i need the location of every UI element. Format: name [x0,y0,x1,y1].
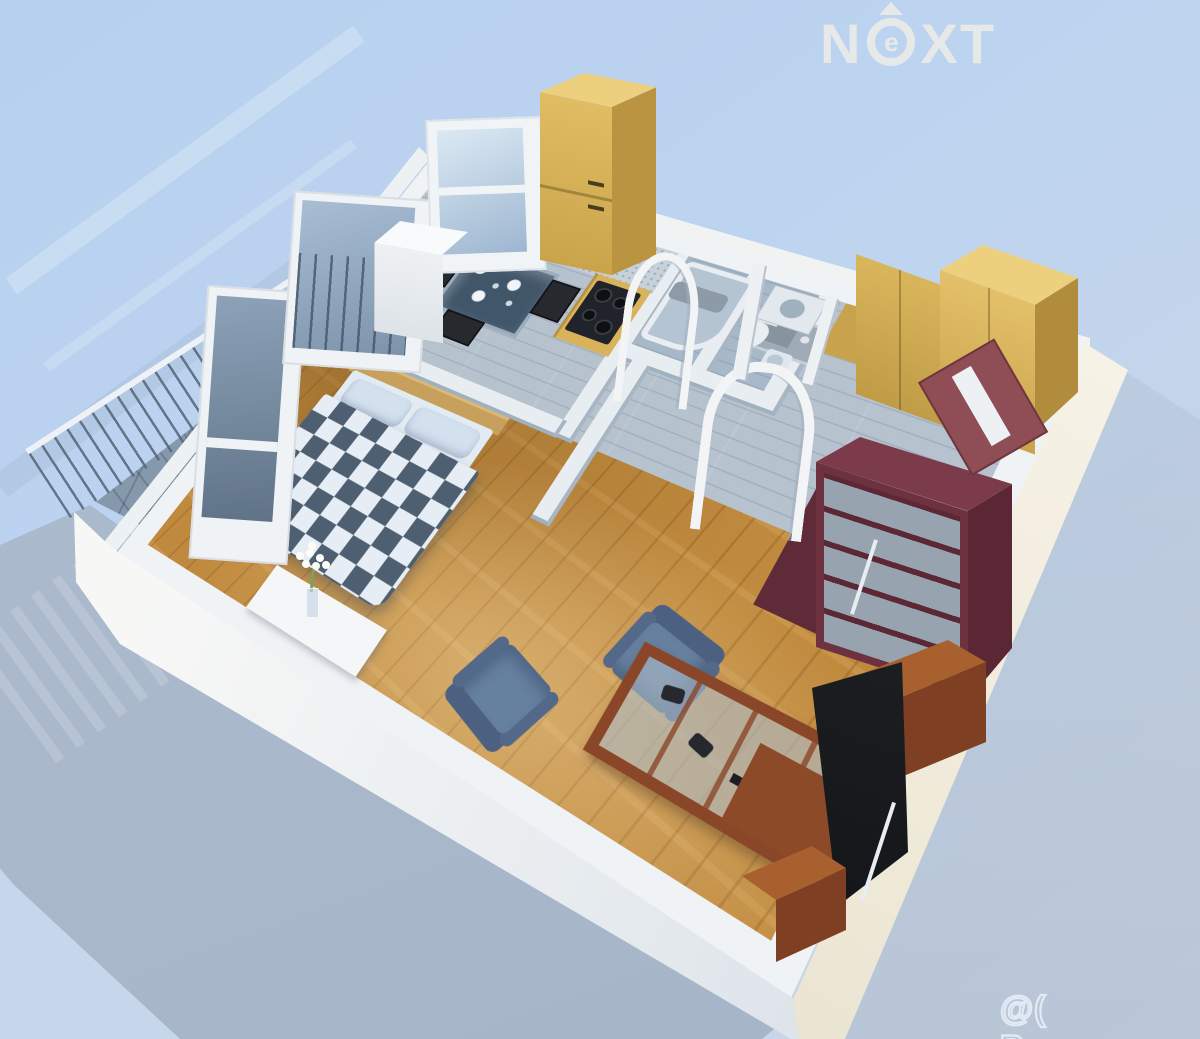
burner [591,317,616,337]
daisy-flowers [296,552,304,560]
cabinet-handle [588,204,604,211]
tall-cabinet-front [540,92,612,275]
logo-letter-t: T [960,21,996,67]
plate [469,289,488,304]
drinking-glass [491,282,500,289]
floorplan-render-image: N e X T @( Bazos.cz [0,0,1200,1039]
drinking-glass [504,300,513,307]
entrance-door-mirror [952,366,1011,446]
tall-cabinet-side [612,87,656,275]
logo-circle: e [867,18,915,66]
flower-vase [306,588,319,618]
plate [504,278,524,293]
kitchen-window [425,116,546,274]
logo-letter-n: N [820,21,862,67]
fridge-front [374,243,443,343]
logo-circle-e: e [867,18,915,66]
burner [579,307,600,323]
wardrobe-door-seam [899,270,901,411]
logo-arrow-icon [879,2,903,15]
balcony-door-glass [201,296,287,522]
cabinet-handle [588,180,604,187]
logo-letter-e: e [884,29,898,55]
shoji-panels [824,473,960,686]
washing-machine-door [776,296,809,321]
next-logo-watermark: N e X T [820,18,996,67]
faucet [799,335,811,344]
logo-letter-x: X [920,21,959,67]
bazos-watermark: @( Bazos.cz [1000,990,1200,1039]
